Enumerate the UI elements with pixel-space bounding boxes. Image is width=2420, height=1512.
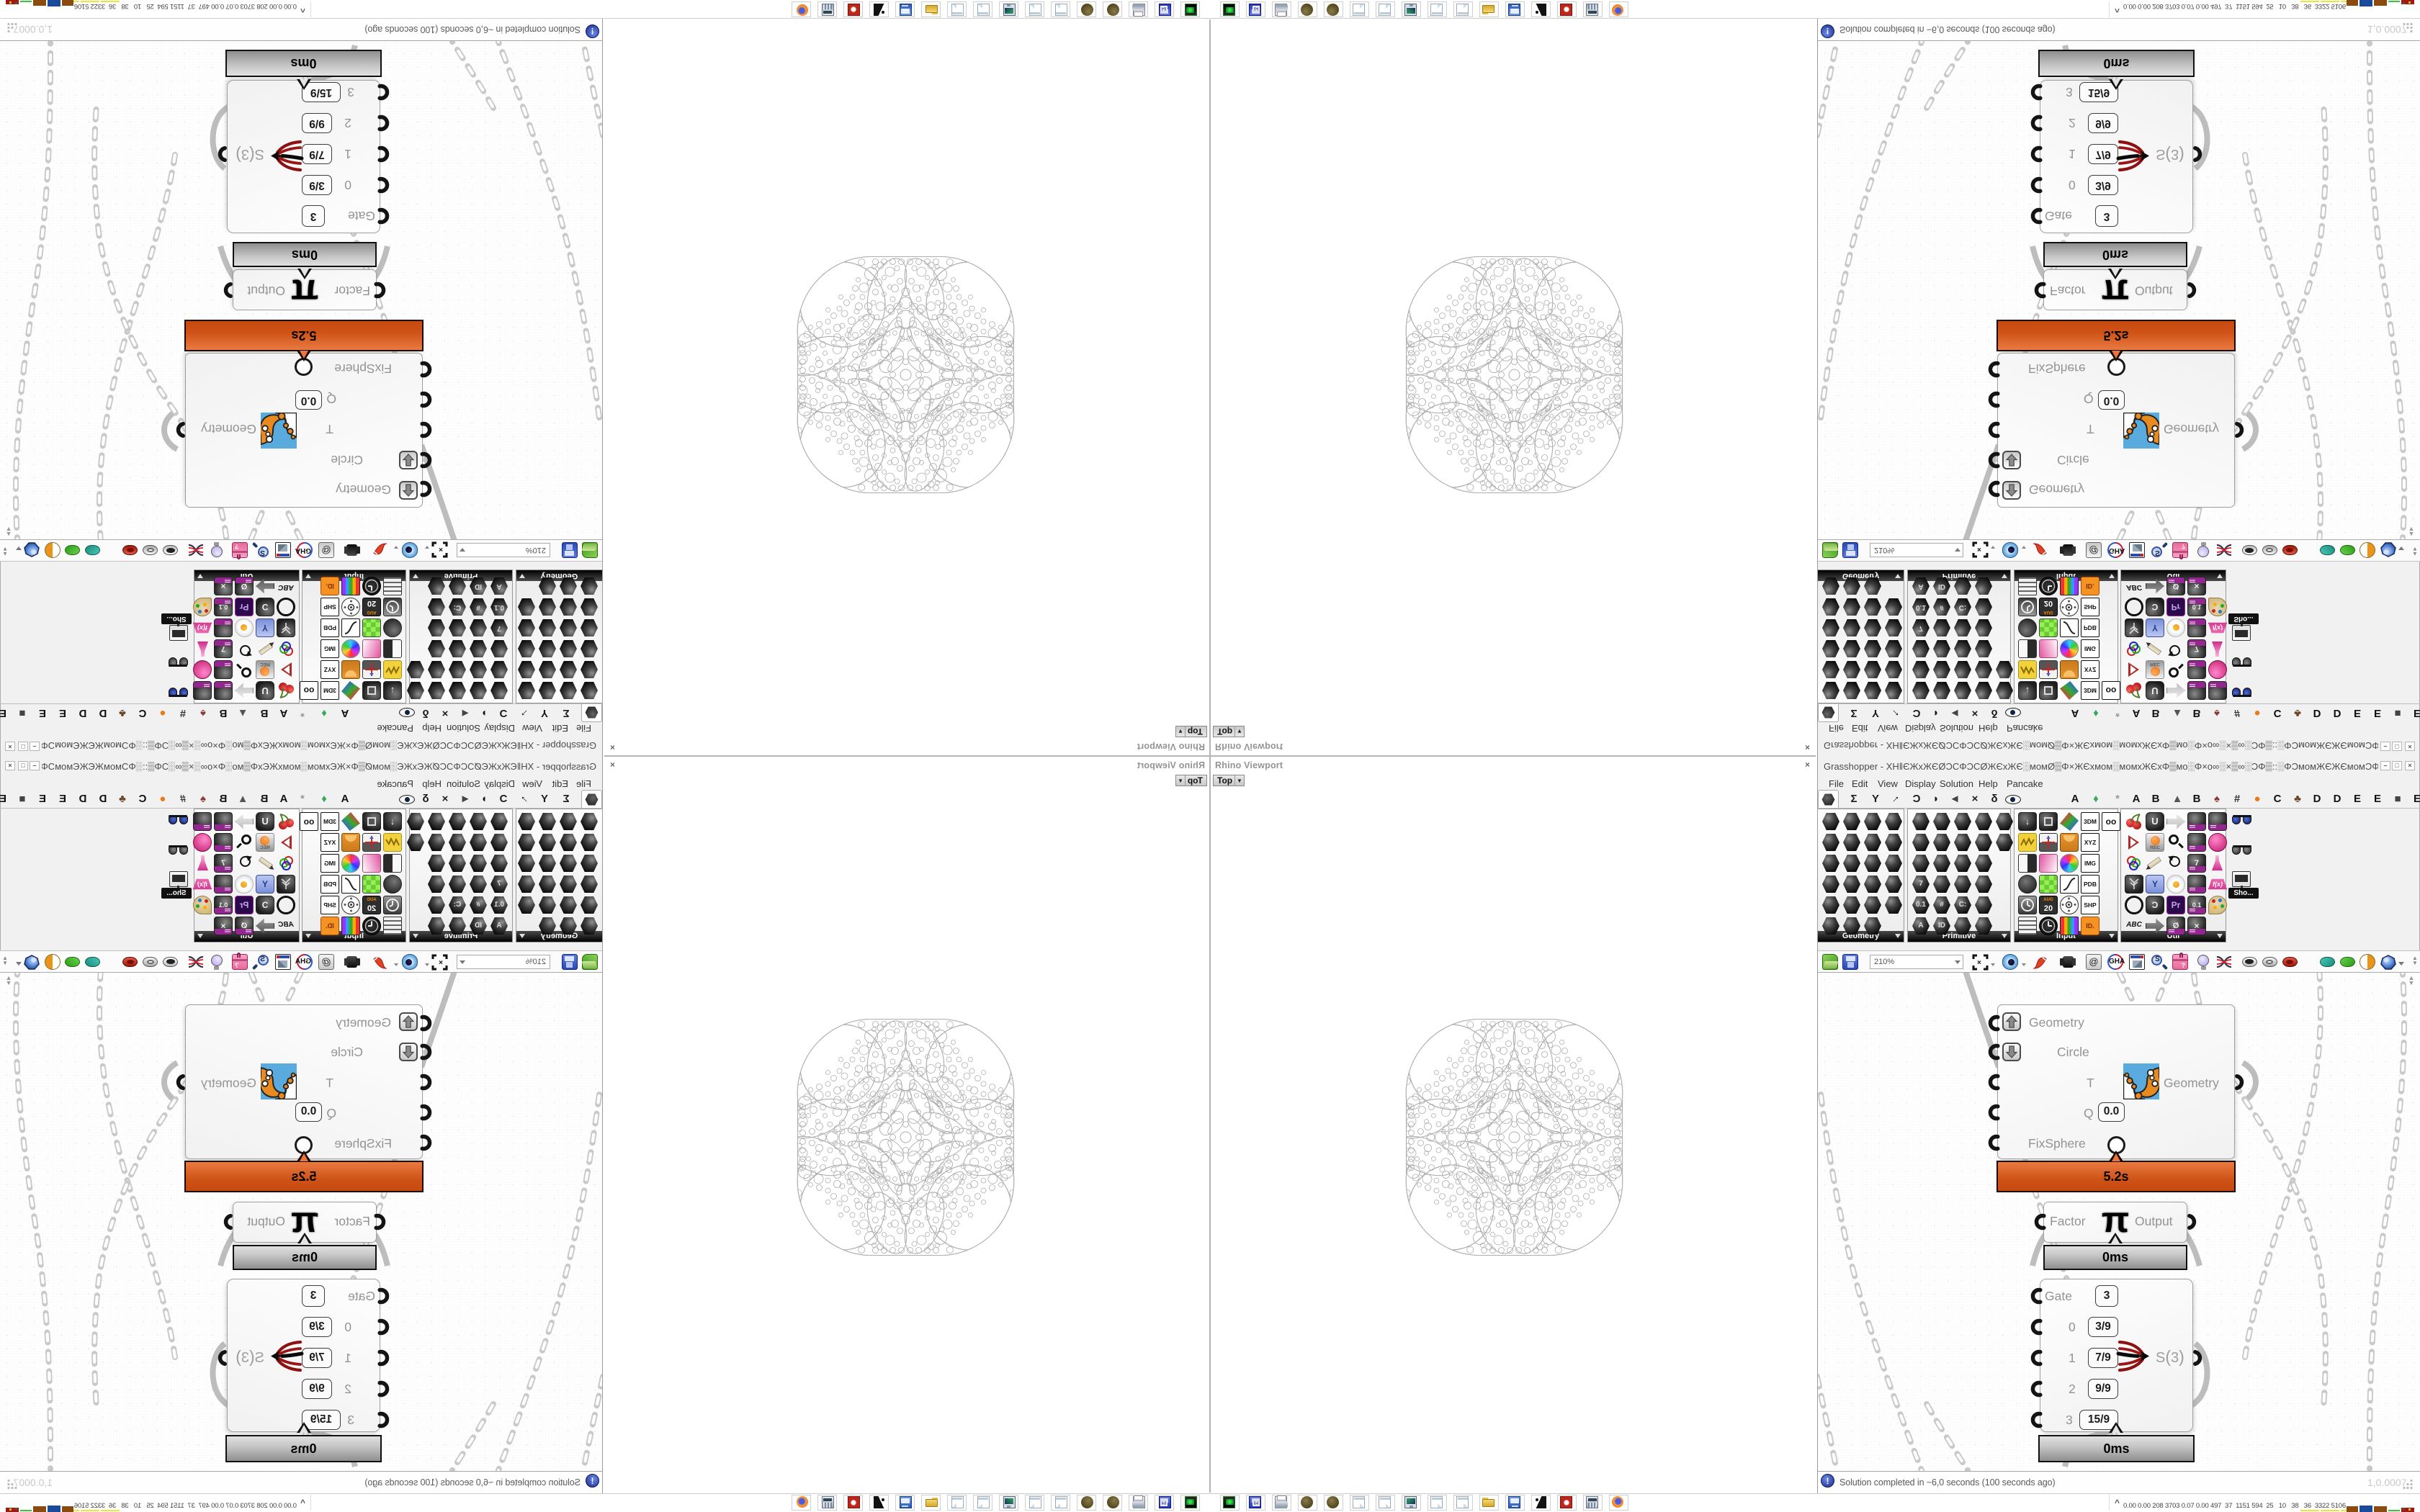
svg-text:×: × [439,959,443,967]
svg-text:×: × [439,545,443,553]
svg-text:×: × [1977,959,1981,967]
svg-text:×: × [1977,545,1981,553]
